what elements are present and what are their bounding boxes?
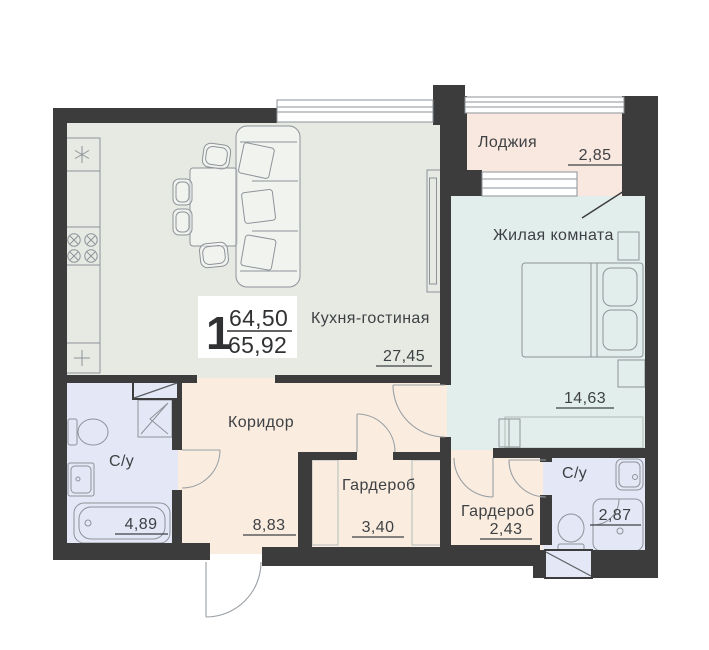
loggia-glazing <box>465 97 624 113</box>
room-fill-bathroom-2 <box>543 452 649 556</box>
room-label-bathroom-2: С/у <box>562 465 587 482</box>
room-area-bathroom-1: 4,89 <box>125 516 158 533</box>
unit-area-bottom: 65,92 <box>228 332 287 358</box>
room-label-bathroom-1: С/у <box>109 453 134 470</box>
room-label-loggia: Лоджия <box>478 134 537 151</box>
room-area-corridor: 8,83 <box>253 517 286 534</box>
room-label-kitchen-living: Кухня-гостиная <box>311 310 430 327</box>
room-area-living-room: 14,63 <box>564 390 606 407</box>
door-entrance <box>206 562 261 617</box>
living-room-window <box>482 172 577 196</box>
room-area-wardrobe-2: 2,43 <box>490 521 523 538</box>
room-label-wardrobe-1: Гардероб <box>342 477 416 494</box>
room-area-wardrobe-1: 3,40 <box>362 519 395 536</box>
room-area-bathroom-2: 2,87 <box>599 507 632 524</box>
kitchen-window <box>277 100 433 122</box>
floor-plan: Лоджия 2,85 Жилая комната 14,63 Кухня-го… <box>0 0 709 650</box>
room-area-kitchen-living: 27,45 <box>383 348 425 365</box>
sofa <box>236 126 300 287</box>
loggia-doorway-floor <box>577 168 622 196</box>
room-area-loggia: 2,85 <box>579 147 612 164</box>
unit-area-top: 64,50 <box>229 305 288 331</box>
room-label-wardrobe-2: Гардероб <box>461 503 535 520</box>
unit-info-badge: 1 64,50 65,92 <box>198 296 297 359</box>
floor-plan-svg: Лоджия 2,85 Жилая комната 14,63 Кухня-го… <box>0 0 709 650</box>
vent-shaft-bathroom-2 <box>545 550 592 578</box>
room-label-corridor: Коридор <box>228 414 294 431</box>
vent-shaft-bathroom-1 <box>133 382 178 399</box>
room-label-living-room: Жилая комната <box>493 227 614 244</box>
